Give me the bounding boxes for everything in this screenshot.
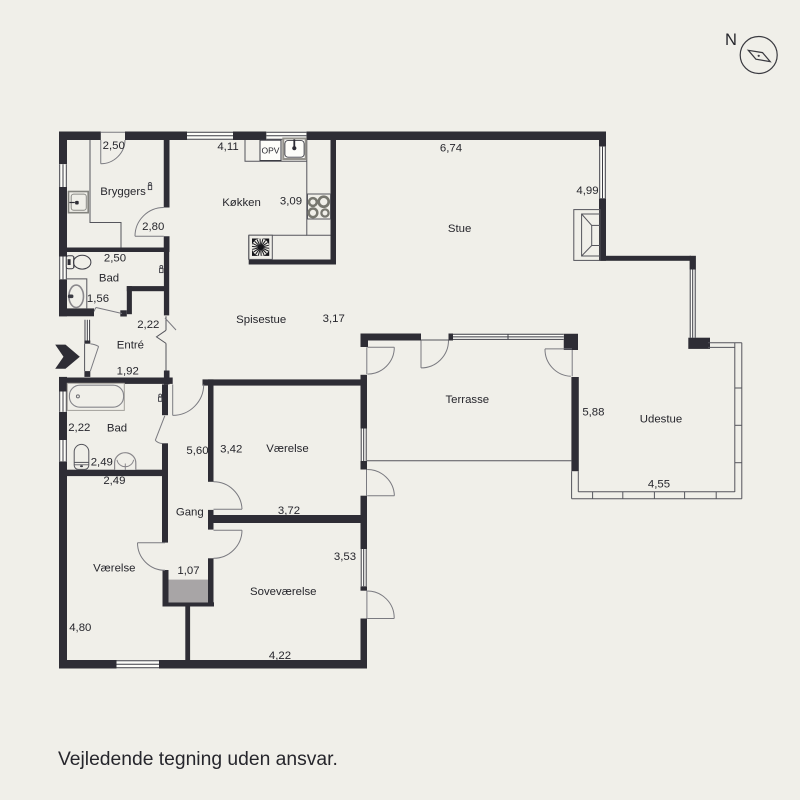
svg-text:6,74: 6,74 bbox=[440, 142, 462, 154]
svg-text:4,22: 4,22 bbox=[269, 650, 291, 662]
svg-text:3,72: 3,72 bbox=[278, 505, 300, 517]
svg-text:Bad: Bad bbox=[107, 423, 127, 435]
svg-text:Køkken: Køkken bbox=[222, 197, 261, 209]
svg-text:2,49: 2,49 bbox=[103, 475, 125, 487]
svg-text:Stue: Stue bbox=[448, 223, 471, 235]
svg-text:3,17: 3,17 bbox=[323, 313, 345, 325]
svg-text:1,92: 1,92 bbox=[117, 365, 139, 377]
svg-text:4,11: 4,11 bbox=[217, 141, 238, 153]
svg-text:OPV: OPV bbox=[262, 145, 280, 155]
svg-text:2,80: 2,80 bbox=[142, 221, 164, 233]
svg-text:Værelse: Værelse bbox=[266, 443, 308, 455]
svg-text:Spisestue: Spisestue bbox=[236, 314, 286, 326]
svg-text:Terrasse: Terrasse bbox=[445, 394, 489, 406]
svg-text:5,88: 5,88 bbox=[582, 407, 604, 419]
svg-text:1,07: 1,07 bbox=[177, 565, 199, 577]
svg-text:4,80: 4,80 bbox=[69, 622, 91, 634]
svg-text:4,55: 4,55 bbox=[648, 478, 670, 490]
svg-text:1,56: 1,56 bbox=[87, 293, 109, 305]
svg-text:2,22: 2,22 bbox=[68, 422, 90, 434]
svg-text:2,22: 2,22 bbox=[137, 319, 159, 331]
svg-text:4,99: 4,99 bbox=[576, 185, 598, 197]
svg-text:Vejledende tegning uden ansvar: Vejledende tegning uden ansvar. bbox=[58, 749, 338, 770]
svg-text:3,53: 3,53 bbox=[334, 551, 356, 563]
svg-text:Entré: Entré bbox=[117, 340, 144, 352]
svg-text:2,50: 2,50 bbox=[103, 140, 125, 152]
svg-text:Bryggers: Bryggers bbox=[100, 186, 146, 198]
svg-text:2,49: 2,49 bbox=[91, 456, 113, 468]
svg-text:Værelse: Værelse bbox=[93, 562, 135, 574]
svg-text:Soveværelse: Soveværelse bbox=[250, 586, 316, 598]
svg-text:2,50: 2,50 bbox=[104, 253, 126, 265]
svg-text:Gang: Gang bbox=[176, 506, 204, 518]
svg-text:Udestue: Udestue bbox=[640, 414, 682, 426]
svg-text:N: N bbox=[725, 31, 737, 49]
svg-text:3,09: 3,09 bbox=[280, 195, 302, 207]
svg-text:3,42: 3,42 bbox=[220, 443, 242, 455]
svg-text:5,60: 5,60 bbox=[186, 445, 208, 457]
svg-text:Bad: Bad bbox=[99, 272, 119, 284]
